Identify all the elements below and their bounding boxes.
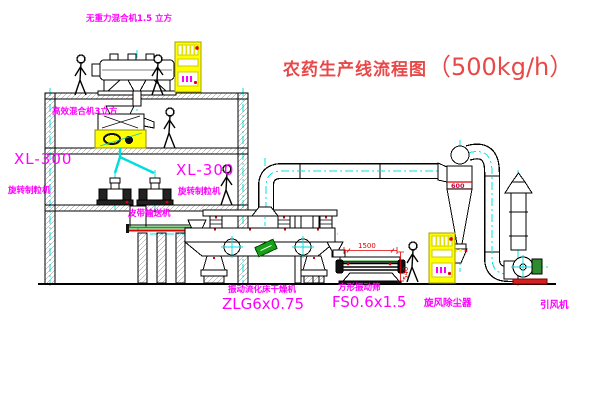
worker-floor2 (164, 108, 175, 148)
dimension-height-label: 540 (403, 267, 410, 280)
diagram-title: 农药生产线流程图（500kg/h） (283, 47, 573, 82)
dryer-model-label: ZLG6x0.75 (222, 297, 304, 312)
exhaust-duct (266, 164, 438, 213)
cyclone-label: 旋风除尘器 (424, 299, 472, 309)
control-cabinet-top (175, 42, 201, 92)
granulator-left-name: 旋转制粒机 (8, 187, 51, 196)
sieve-model-label: FS0.6x1.5 (332, 295, 406, 310)
fluid-bed-dryer (185, 207, 343, 283)
top-mixer-label: 无重力混合机1.5 立方 (86, 15, 172, 24)
granulator-left-model: XL-300 (14, 152, 72, 167)
title-text: 农药生产线流程图 (283, 60, 427, 80)
exhaust-stack (505, 173, 532, 250)
floor-mixer-label: 高效混合机3立方 (52, 108, 117, 117)
fan-label: 引风机 (540, 301, 569, 311)
control-cabinet-right (429, 233, 455, 283)
process-flow-diagram: 农药生产线流程图（500kg/h） 无重力混合机1.5 立方 高效混合机3立方 … (0, 0, 600, 403)
belt-conveyor-label: 皮带输送机 (128, 210, 171, 219)
granulator-left (97, 178, 133, 205)
dryer-name-label: 振动流化床干燥机 (228, 286, 296, 295)
title-capacity: （500kg/h） (427, 53, 573, 81)
cyclone-to-fan-duct (468, 152, 517, 274)
granulator-right-name: 旋转制粒机 (178, 188, 221, 197)
cyclone-band-label: 600 (451, 183, 465, 190)
sieve-name-label: 方形振动筛 (338, 284, 381, 293)
vibrating-sieve (333, 247, 405, 284)
granulator-right-model: XL-300 (176, 163, 234, 178)
worker-roof-left (75, 55, 86, 95)
granulator-right (137, 178, 173, 205)
dimension-width-label: 1500 (358, 243, 376, 250)
